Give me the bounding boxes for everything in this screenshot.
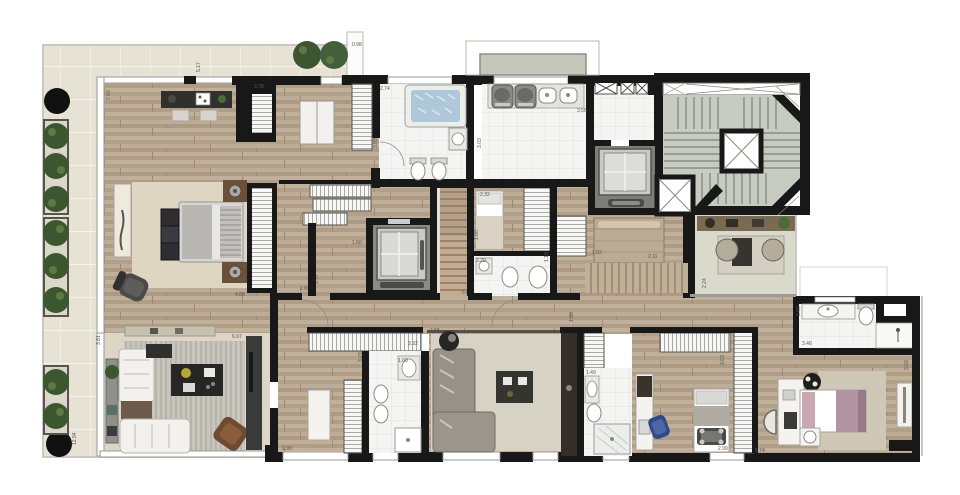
svg-text:1.00: 1.00 [569, 312, 575, 322]
svg-text:0.98: 0.98 [352, 42, 362, 48]
svg-text:3.32: 3.32 [408, 341, 418, 347]
svg-text:1.49: 1.49 [586, 370, 596, 376]
svg-text:7.60: 7.60 [106, 90, 112, 100]
svg-text:1.60: 1.60 [796, 306, 802, 316]
svg-text:5.17: 5.17 [196, 62, 202, 72]
svg-text:1.50: 1.50 [352, 240, 362, 246]
svg-text:2.99: 2.99 [718, 446, 728, 452]
svg-text:3.56: 3.56 [577, 108, 587, 114]
svg-text:2.32: 2.32 [480, 192, 490, 198]
svg-text:3.78: 3.78 [254, 84, 264, 90]
svg-text:3.81: 3.81 [96, 335, 102, 345]
svg-text:2.90: 2.90 [282, 446, 292, 452]
svg-text:4.88: 4.88 [235, 292, 245, 298]
svg-text:2.24: 2.24 [702, 278, 708, 288]
svg-text:1.80: 1.80 [474, 230, 480, 240]
svg-text:6.97: 6.97 [232, 334, 242, 340]
svg-text:3.46: 3.46 [802, 341, 812, 347]
svg-text:1.02: 1.02 [592, 250, 602, 256]
svg-text:1.18: 1.18 [544, 252, 550, 262]
svg-text:3.03: 3.03 [477, 138, 483, 148]
svg-text:3.03: 3.03 [904, 360, 910, 370]
svg-text:1.60: 1.60 [398, 358, 408, 364]
svg-text:2.11: 2.11 [648, 254, 658, 260]
svg-text:3.03: 3.03 [720, 355, 726, 365]
svg-text:2.29: 2.29 [476, 258, 486, 264]
svg-text:4.55: 4.55 [430, 328, 440, 334]
svg-text:12.94: 12.94 [72, 432, 78, 445]
svg-text:2.74: 2.74 [380, 86, 390, 92]
svg-text:3.03: 3.03 [373, 138, 379, 148]
svg-text:5.74: 5.74 [755, 448, 765, 454]
